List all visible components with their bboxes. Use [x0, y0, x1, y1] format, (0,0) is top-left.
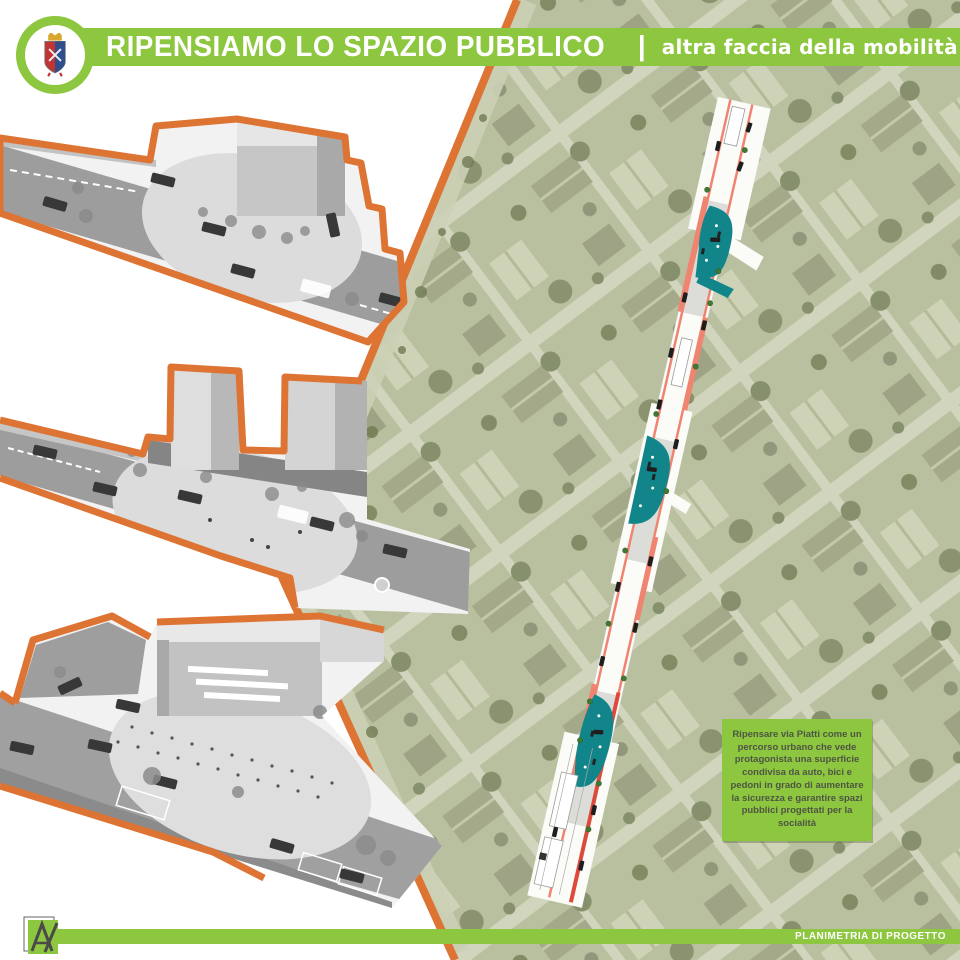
project-note-text: Ripensare via Piatti come un percorso ur…: [730, 729, 863, 829]
page-title: RIPENSIAMO LO SPAZIO PUBBLICO: [106, 31, 605, 64]
presentation-board: RIPENSIAMO LO SPAZIO PUBBLICO | altra fa…: [0, 0, 960, 960]
page-subtitle: altra faccia della mobilità: [662, 35, 958, 59]
av-monogram-icon: [20, 911, 64, 957]
logo-inner-circle: [25, 25, 85, 85]
municipality-logo-badge: [16, 16, 94, 94]
footer-bar: PLANIMETRIA DI PROGETTO: [57, 929, 960, 944]
project-note: Ripensare via Piatti come un percorso ur…: [722, 719, 872, 841]
render-1-street-view: [0, 100, 440, 350]
av-monogram-logo: [20, 911, 64, 957]
title-divider: |: [638, 30, 646, 62]
coat-of-arms-icon: [38, 33, 72, 77]
footer-label: PLANIMETRIA DI PROGETTO: [795, 929, 946, 944]
header-bar: RIPENSIAMO LO SPAZIO PUBBLICO | altra fa…: [28, 28, 960, 66]
